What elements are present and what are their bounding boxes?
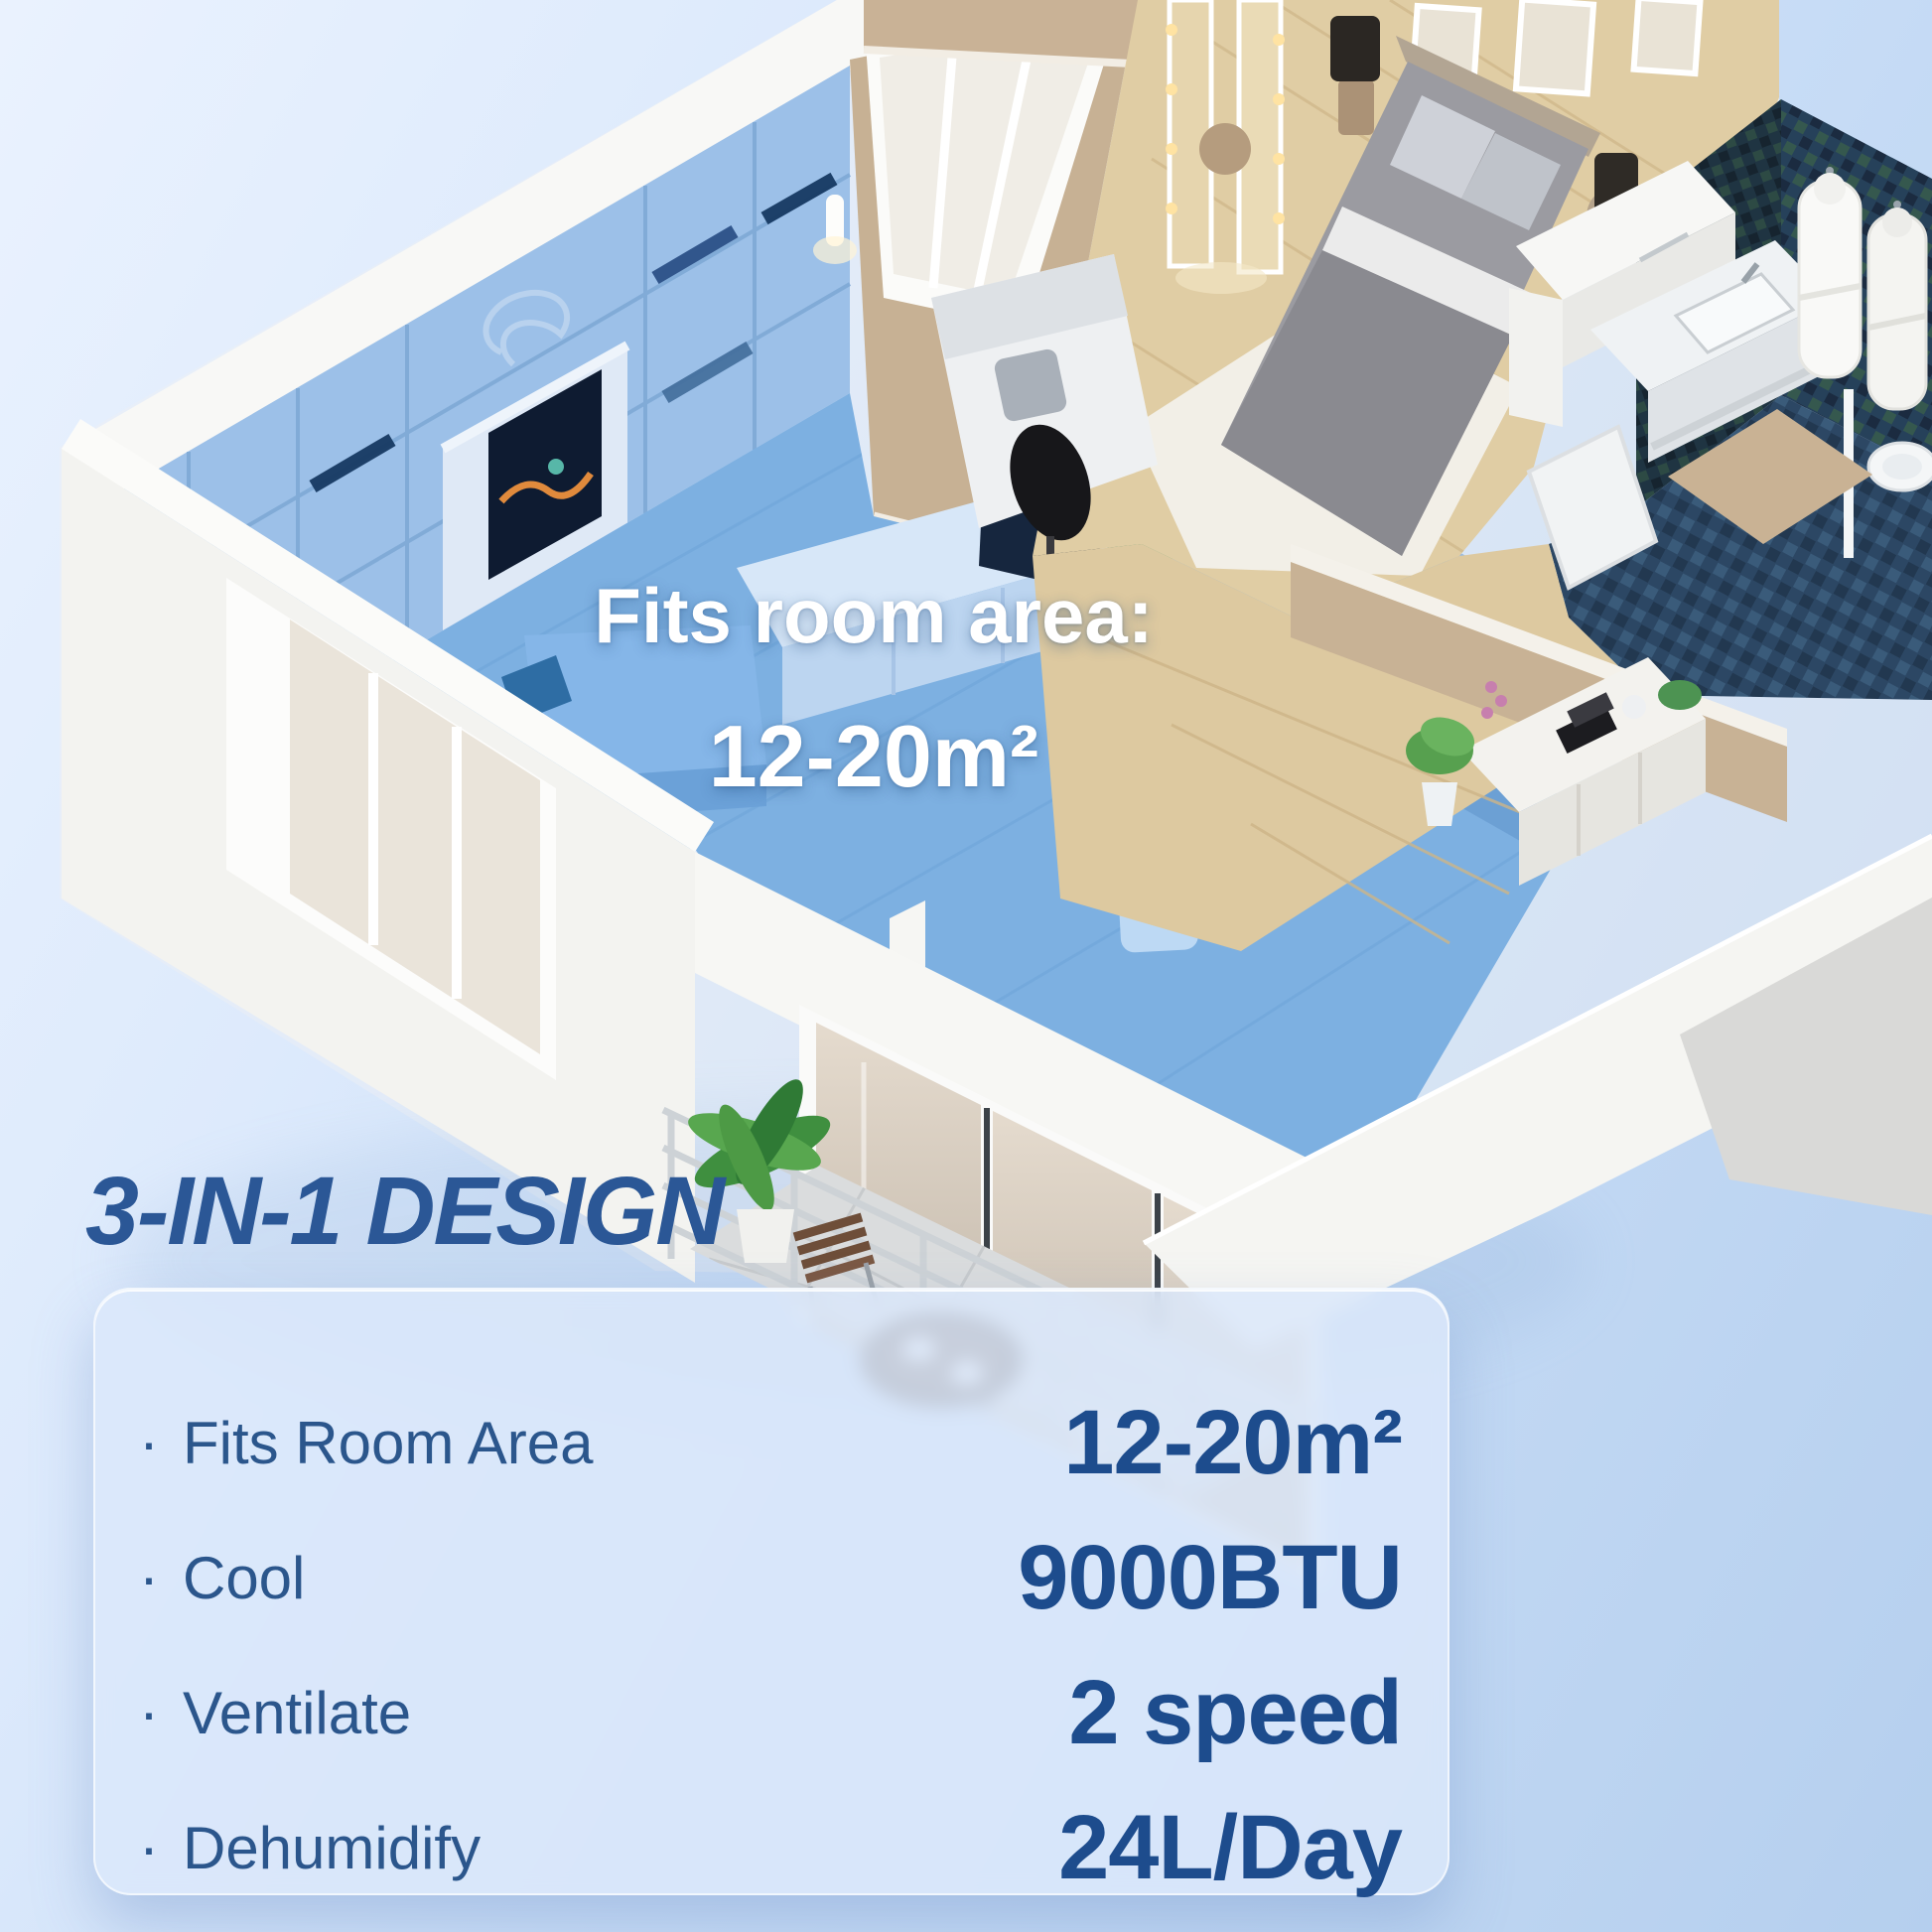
feature-row-ventilate: · Ventilate 2 speed (139, 1665, 1402, 1760)
feature-label-text: Fits Room Area (183, 1409, 593, 1477)
section-heading: 3-IN-1 DESIGN (85, 1160, 723, 1264)
feature-label: · Ventilate (139, 1679, 411, 1747)
bullet: · (139, 1818, 159, 1877)
feature-row-cool: · Cool 9000BTU (139, 1530, 1402, 1625)
feature-label-text: Dehumidify (183, 1814, 481, 1882)
feature-row-dehumidify: · Dehumidify 24L/Day (139, 1800, 1402, 1895)
feature-value: 9000BTU (1018, 1526, 1402, 1630)
spec-card: · Fits Room Area 12-20m² · Cool 9000BTU … (93, 1288, 1449, 1895)
bullet: · (139, 1413, 159, 1472)
feature-value: 2 speed (1068, 1661, 1402, 1765)
product-infographic: Fits room area: 12-20m² 3-IN-1 DESIGN · … (0, 0, 1932, 1932)
bullet: · (139, 1548, 159, 1607)
feature-value: 24L/Day (1058, 1796, 1402, 1900)
room-area-overlay-line2: 12-20m² (437, 707, 1311, 806)
feature-value: 12-20m² (1063, 1391, 1402, 1495)
toilet (1868, 443, 1932, 490)
feature-row-fits-room-area: · Fits Room Area 12-20m² (139, 1395, 1402, 1490)
feature-label: · Dehumidify (139, 1814, 481, 1882)
bullet: · (139, 1683, 159, 1742)
feature-label-text: Ventilate (183, 1679, 411, 1747)
room-area-overlay-line1: Fits room area: (437, 568, 1311, 663)
feature-label-text: Cool (183, 1544, 305, 1612)
feature-label: · Fits Room Area (139, 1409, 593, 1477)
feature-label: · Cool (139, 1544, 305, 1612)
